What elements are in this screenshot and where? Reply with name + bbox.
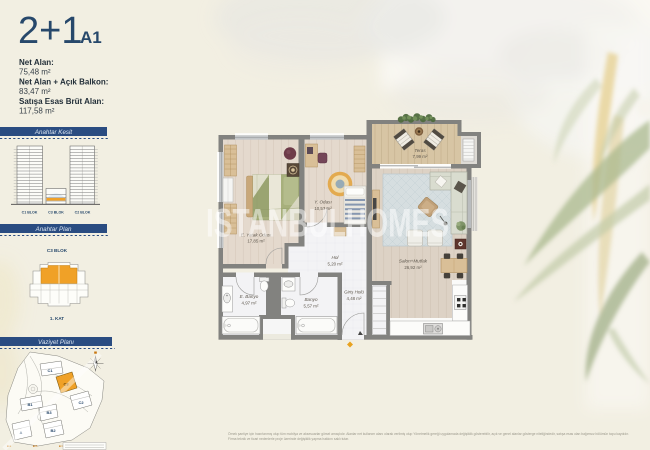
svg-text:2+1: 2+1 [18,10,82,52]
svg-text:Salon+Mutfak: Salon+Mutfak [399,259,428,264]
svg-text:Anahtar Kesit: Anahtar Kesit [34,129,72,136]
svg-text:Net Alan + Açık Balkon:: Net Alan + Açık Balkon: [19,78,108,87]
svg-text:C3 BLOK: C3 BLOK [48,211,64,215]
svg-text:5,57 m²: 5,57 m² [304,304,319,309]
svg-text:B3: B3 [46,410,52,415]
svg-text:Teras: Teras [414,148,426,153]
svg-text:C2: C2 [78,400,84,405]
svg-text:26,92 m²: 26,92 m² [404,265,422,270]
svg-text:Satışa Esas Brüt Alan:: Satışa Esas Brüt Alan: [19,97,104,106]
svg-text:E. Banyo: E. Banyo [240,294,259,299]
svg-text:4,48 m²: 4,48 m² [347,296,362,301]
svg-text:B1: B1 [27,402,33,407]
svg-text:B2: B2 [50,428,56,433]
svg-text:7,99 m²: 7,99 m² [413,154,428,159]
svg-text:5,20 m²: 5,20 m² [328,262,343,267]
svg-text:A1: A1 [80,28,102,47]
svg-text:Hol: Hol [332,255,340,260]
svg-text:Giriş Holü: Giriş Holü [344,290,364,295]
svg-text:83,47 m²: 83,47 m² [19,87,51,96]
svg-text:117,58 m²: 117,58 m² [19,107,55,116]
svg-text:Net Alan:: Net Alan: [19,58,54,67]
svg-text:■ B: ■ B [33,444,37,448]
svg-text:Vaziyet Planı: Vaziyet Planı [38,339,74,346]
svg-text:C2 BLOK: C2 BLOK [75,211,91,215]
svg-text:C3 BLOK: C3 BLOK [47,248,68,253]
svg-text:Firma teknik ve ticari nedenle: Firma teknik ve ticari nedenlerle proje … [228,437,349,441]
svg-text:C1: C1 [47,368,53,373]
svg-text:1. KAT: 1. KAT [50,316,64,321]
svg-text:75,48 m²: 75,48 m² [19,68,51,77]
svg-text:Örnek şantiye için hazırlanmış: Örnek şantiye için hazırlanmış olup tüm … [228,432,629,436]
svg-text:Anahtar Plan: Anahtar Plan [35,226,72,233]
svg-text:Banyo: Banyo [304,297,317,302]
svg-text:C1 BLOK: C1 BLOK [22,211,38,215]
svg-text:4,97 m²: 4,97 m² [242,301,257,306]
svg-text:ISTANBULHOMES: ISTANBULHOMES [206,202,449,246]
